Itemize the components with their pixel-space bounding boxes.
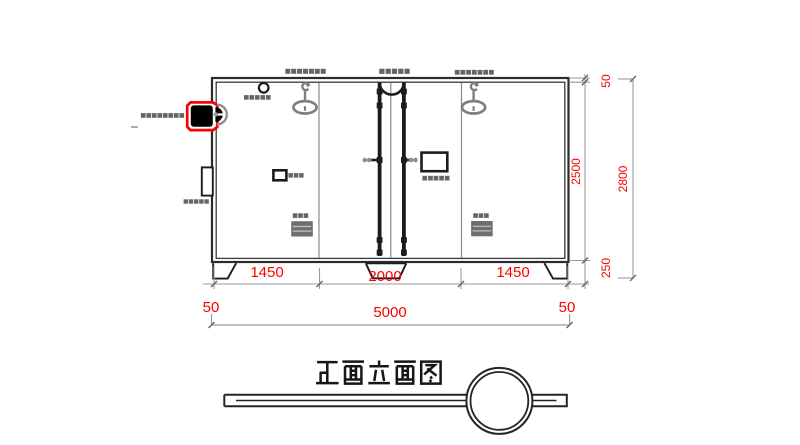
svg-text:2800: 2800: [616, 165, 630, 192]
svg-text:1450: 1450: [496, 264, 529, 281]
svg-text:250: 250: [599, 258, 613, 278]
svg-text:1450: 1450: [250, 264, 283, 281]
svg-text:50: 50: [203, 299, 220, 316]
svg-text:5000: 5000: [373, 304, 406, 321]
svg-text:2000: 2000: [368, 268, 401, 285]
svg-text:50: 50: [559, 299, 576, 316]
svg-text:50: 50: [599, 74, 613, 88]
svg-text:2500: 2500: [569, 158, 583, 185]
